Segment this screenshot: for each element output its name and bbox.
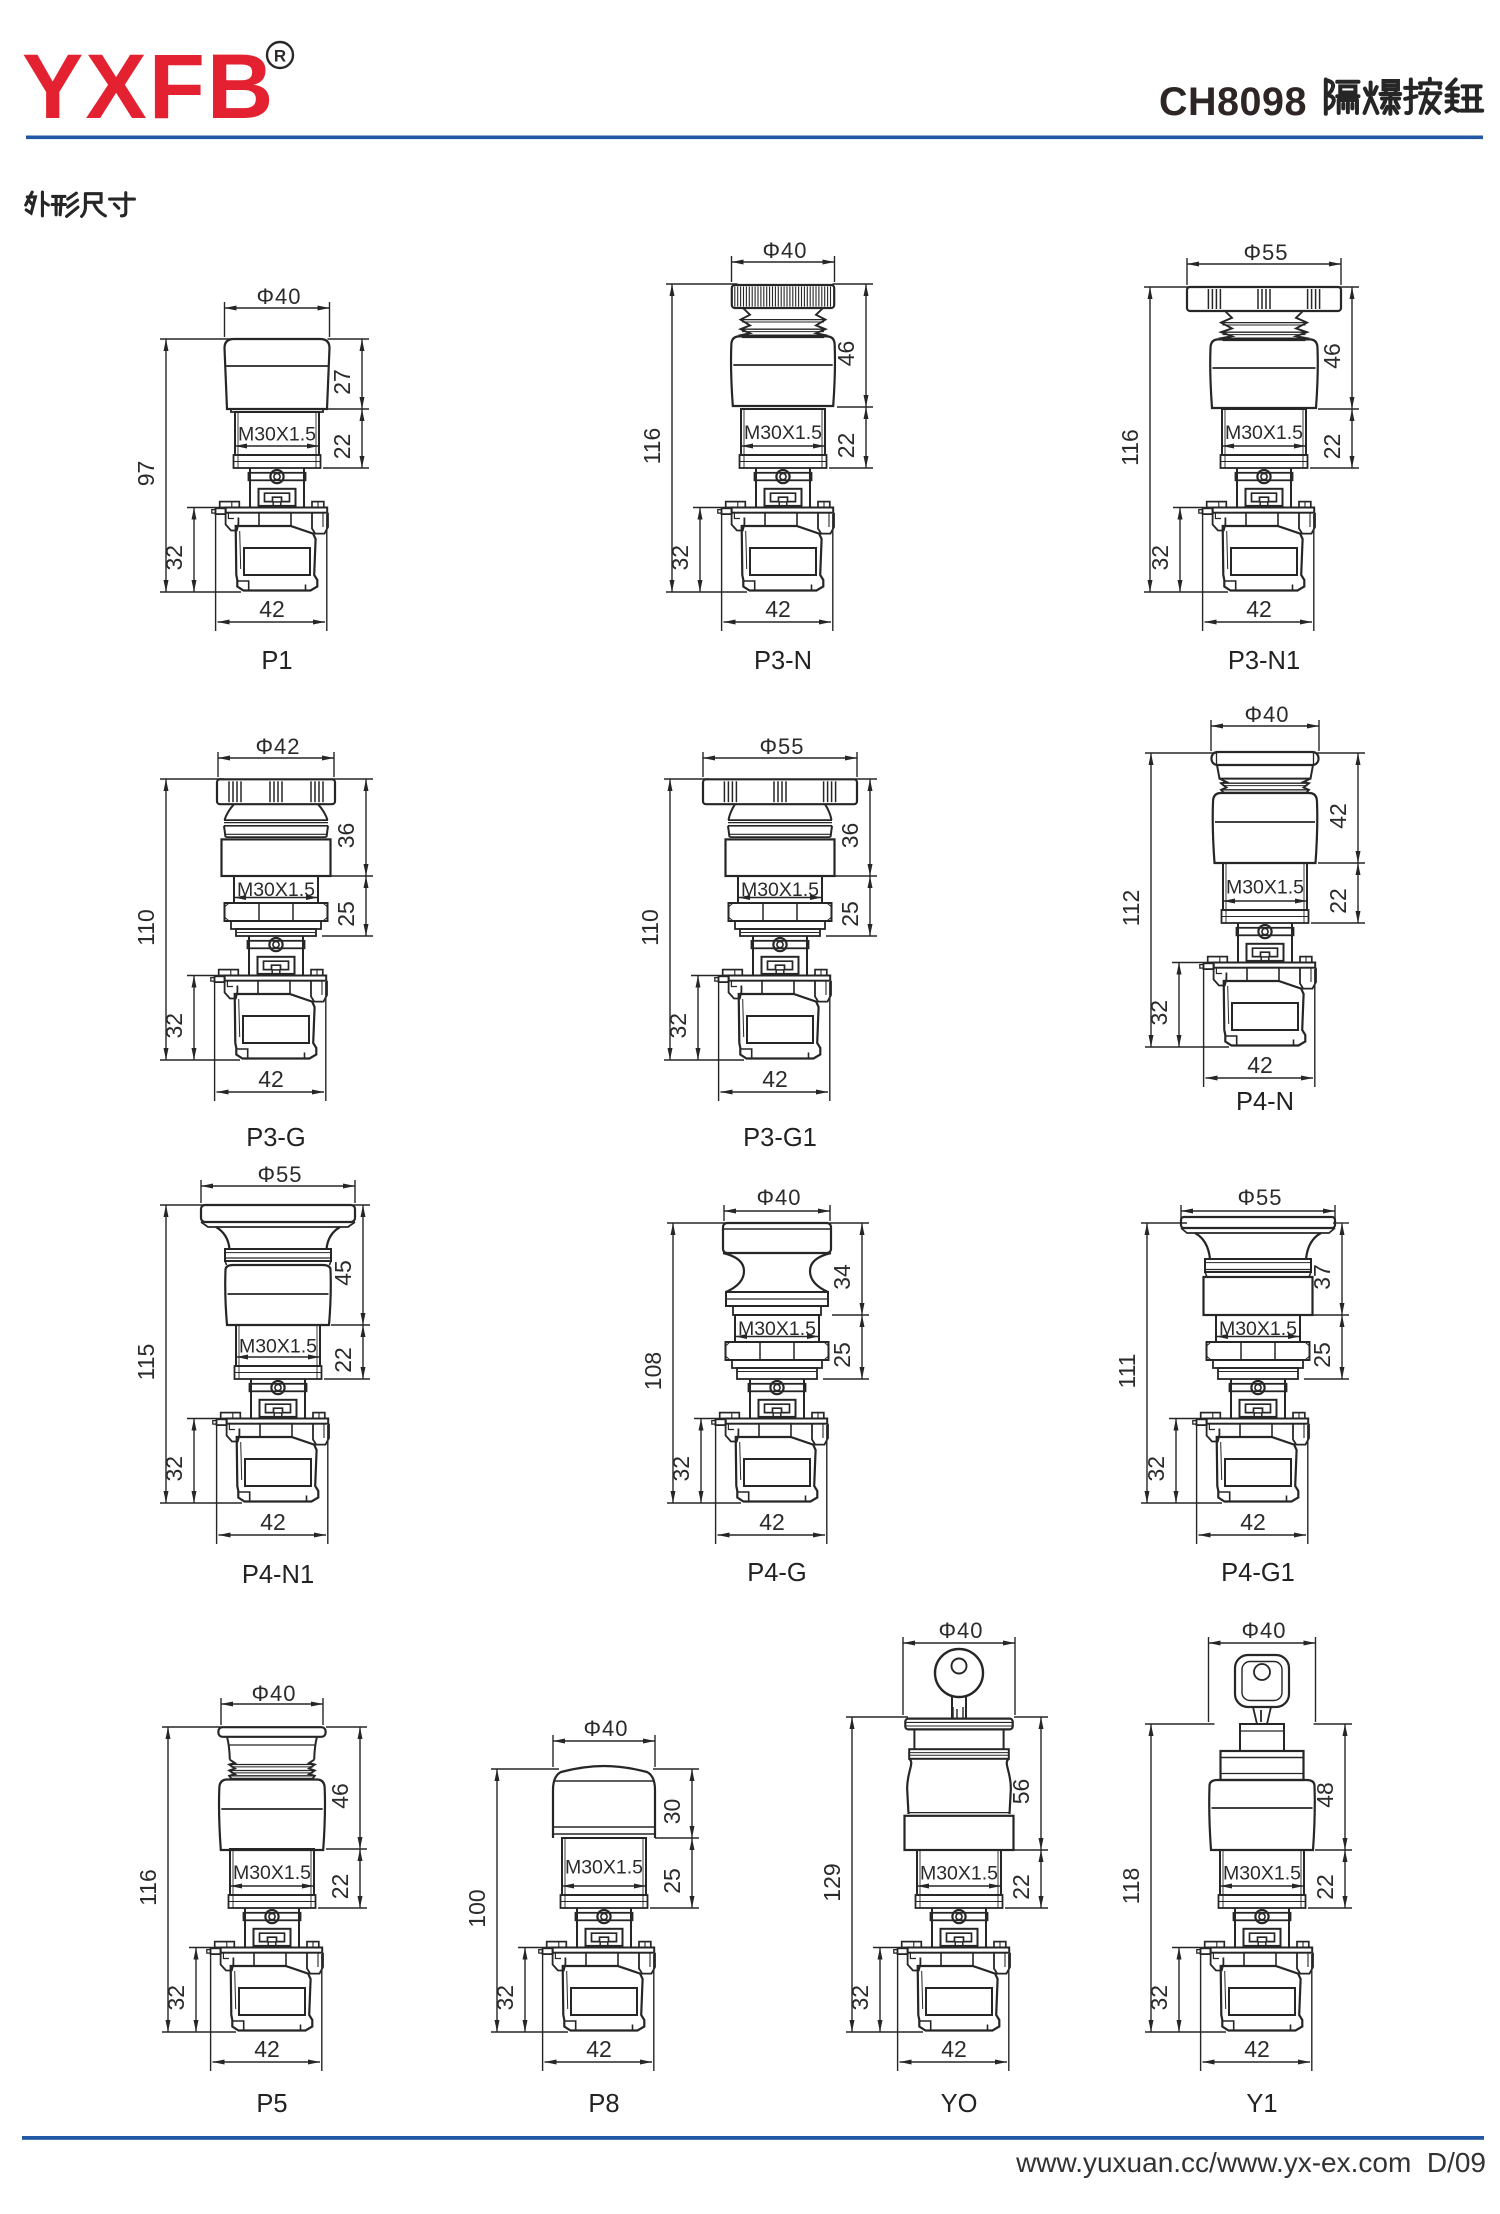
svg-text:Φ40: Φ40 <box>583 1716 628 1741</box>
svg-text:32: 32 <box>492 1985 518 2011</box>
svg-text:32: 32 <box>161 1013 187 1039</box>
svg-text:116: 116 <box>135 1869 161 1906</box>
svg-text:Φ40: Φ40 <box>762 238 807 263</box>
svg-text:48: 48 <box>1312 1782 1338 1808</box>
svg-text:100: 100 <box>464 1889 490 1927</box>
svg-text:32: 32 <box>1147 545 1173 571</box>
svg-text:36: 36 <box>333 823 359 849</box>
svg-text:42: 42 <box>759 1509 785 1535</box>
svg-text:37: 37 <box>1309 1264 1335 1290</box>
svg-text:46: 46 <box>1319 343 1345 369</box>
svg-text:M30X1.5: M30X1.5 <box>1223 1863 1301 1885</box>
svg-text:M30X1.5: M30X1.5 <box>238 424 316 446</box>
svg-text:M30X1.5: M30X1.5 <box>1225 422 1303 444</box>
svg-text:32: 32 <box>667 545 693 571</box>
svg-text:116: 116 <box>639 428 665 465</box>
svg-text:32: 32 <box>668 1456 694 1482</box>
svg-text:M30X1.5: M30X1.5 <box>565 1857 643 1879</box>
svg-text:P4-G1: P4-G1 <box>1221 1559 1295 1587</box>
svg-text:Φ40: Φ40 <box>756 1185 801 1210</box>
svg-text:R: R <box>274 47 286 66</box>
svg-text:97: 97 <box>133 461 159 487</box>
svg-text:P4-N: P4-N <box>1236 1088 1294 1116</box>
svg-text:42: 42 <box>259 596 285 622</box>
svg-text:P1: P1 <box>261 647 292 675</box>
svg-text:42: 42 <box>1246 596 1272 622</box>
svg-text:25: 25 <box>829 1342 855 1368</box>
svg-text:22: 22 <box>1008 1874 1034 1900</box>
svg-text:42: 42 <box>254 2036 280 2062</box>
svg-text:Φ42: Φ42 <box>255 734 300 759</box>
svg-text:P4-N1: P4-N1 <box>242 1561 314 1589</box>
svg-text:Y1: Y1 <box>1246 2090 1277 2118</box>
svg-text:25: 25 <box>1309 1342 1335 1368</box>
svg-text:22: 22 <box>327 1874 353 1900</box>
svg-text:P5: P5 <box>256 2090 287 2118</box>
svg-text:118: 118 <box>1118 1868 1144 1905</box>
svg-text:M30X1.5: M30X1.5 <box>233 1862 311 1884</box>
svg-text:42: 42 <box>1247 1052 1273 1078</box>
svg-text:30: 30 <box>659 1799 685 1825</box>
svg-text:Φ40: Φ40 <box>1241 1618 1286 1643</box>
svg-text:25: 25 <box>659 1868 685 1894</box>
svg-text:22: 22 <box>833 433 859 459</box>
svg-text:Φ55: Φ55 <box>1237 1185 1282 1210</box>
svg-text:22: 22 <box>1312 1874 1338 1900</box>
svg-text:Φ55: Φ55 <box>759 734 804 759</box>
svg-text:129: 129 <box>819 1863 845 1901</box>
svg-text:32: 32 <box>665 1013 691 1039</box>
svg-text:110: 110 <box>133 909 159 946</box>
svg-text:56: 56 <box>1008 1779 1034 1805</box>
svg-text:42: 42 <box>1240 1509 1266 1535</box>
svg-text:Φ40: Φ40 <box>256 284 301 309</box>
svg-text:42: 42 <box>765 596 791 622</box>
svg-text:P3-N1: P3-N1 <box>1228 647 1300 675</box>
svg-text:110: 110 <box>637 909 663 946</box>
svg-text:34: 34 <box>829 1264 855 1290</box>
svg-text:YO: YO <box>941 2090 978 2118</box>
svg-text:25: 25 <box>837 901 863 927</box>
svg-text:P8: P8 <box>588 2090 619 2118</box>
svg-text:22: 22 <box>1325 888 1351 914</box>
svg-text:42: 42 <box>1244 2036 1270 2062</box>
svg-text:32: 32 <box>847 1985 873 2011</box>
svg-text:32: 32 <box>1146 1000 1172 1026</box>
svg-text:22: 22 <box>1319 434 1345 460</box>
svg-text:www.yuxuan.cc/www.yx-ex.com D: www.yuxuan.cc/www.yx-ex.com D/09 <box>1015 2147 1486 2178</box>
svg-text:32: 32 <box>161 545 187 571</box>
svg-text:42: 42 <box>586 2036 612 2062</box>
svg-text:32: 32 <box>161 1456 187 1482</box>
svg-text:22: 22 <box>329 434 355 460</box>
svg-text:32: 32 <box>1143 1456 1169 1482</box>
svg-text:P4-G: P4-G <box>747 1559 807 1587</box>
svg-text:M30X1.5: M30X1.5 <box>744 422 822 444</box>
svg-text:Φ55: Φ55 <box>257 1162 302 1187</box>
svg-text:Φ40: Φ40 <box>251 1681 296 1706</box>
svg-text:27: 27 <box>329 369 355 395</box>
svg-text:M30X1.5: M30X1.5 <box>239 1336 317 1358</box>
svg-text:Φ40: Φ40 <box>1244 702 1289 727</box>
svg-text:116: 116 <box>1117 429 1143 466</box>
svg-text:32: 32 <box>163 1985 189 2011</box>
svg-text:112: 112 <box>1118 890 1144 927</box>
svg-text:45: 45 <box>330 1260 356 1286</box>
svg-text:M30X1.5: M30X1.5 <box>1226 877 1304 899</box>
svg-text:M30X1.5: M30X1.5 <box>920 1863 998 1885</box>
svg-text:42: 42 <box>941 2036 967 2062</box>
svg-text:YXFB: YXFB <box>22 36 275 138</box>
svg-text:36: 36 <box>837 823 863 849</box>
svg-text:Φ55: Φ55 <box>1243 240 1288 265</box>
svg-text:108: 108 <box>640 1352 666 1390</box>
svg-text:111: 111 <box>1114 1354 1140 1389</box>
svg-text:32: 32 <box>1146 1985 1172 2011</box>
svg-text:115: 115 <box>133 1344 159 1381</box>
svg-text:42: 42 <box>1325 803 1351 829</box>
svg-text:P3-G: P3-G <box>246 1124 306 1152</box>
svg-text:42: 42 <box>258 1066 284 1092</box>
svg-text:46: 46 <box>833 341 859 367</box>
svg-text:46: 46 <box>327 1783 353 1809</box>
svg-text:P3-N: P3-N <box>754 647 812 675</box>
svg-text:22: 22 <box>330 1347 356 1373</box>
svg-text:P3-G1: P3-G1 <box>743 1124 817 1152</box>
svg-text:42: 42 <box>260 1509 286 1535</box>
svg-text:42: 42 <box>762 1066 788 1092</box>
svg-text:CH8098: CH8098 <box>1159 80 1307 124</box>
svg-text:Φ40: Φ40 <box>938 1618 983 1643</box>
svg-text:25: 25 <box>333 901 359 927</box>
